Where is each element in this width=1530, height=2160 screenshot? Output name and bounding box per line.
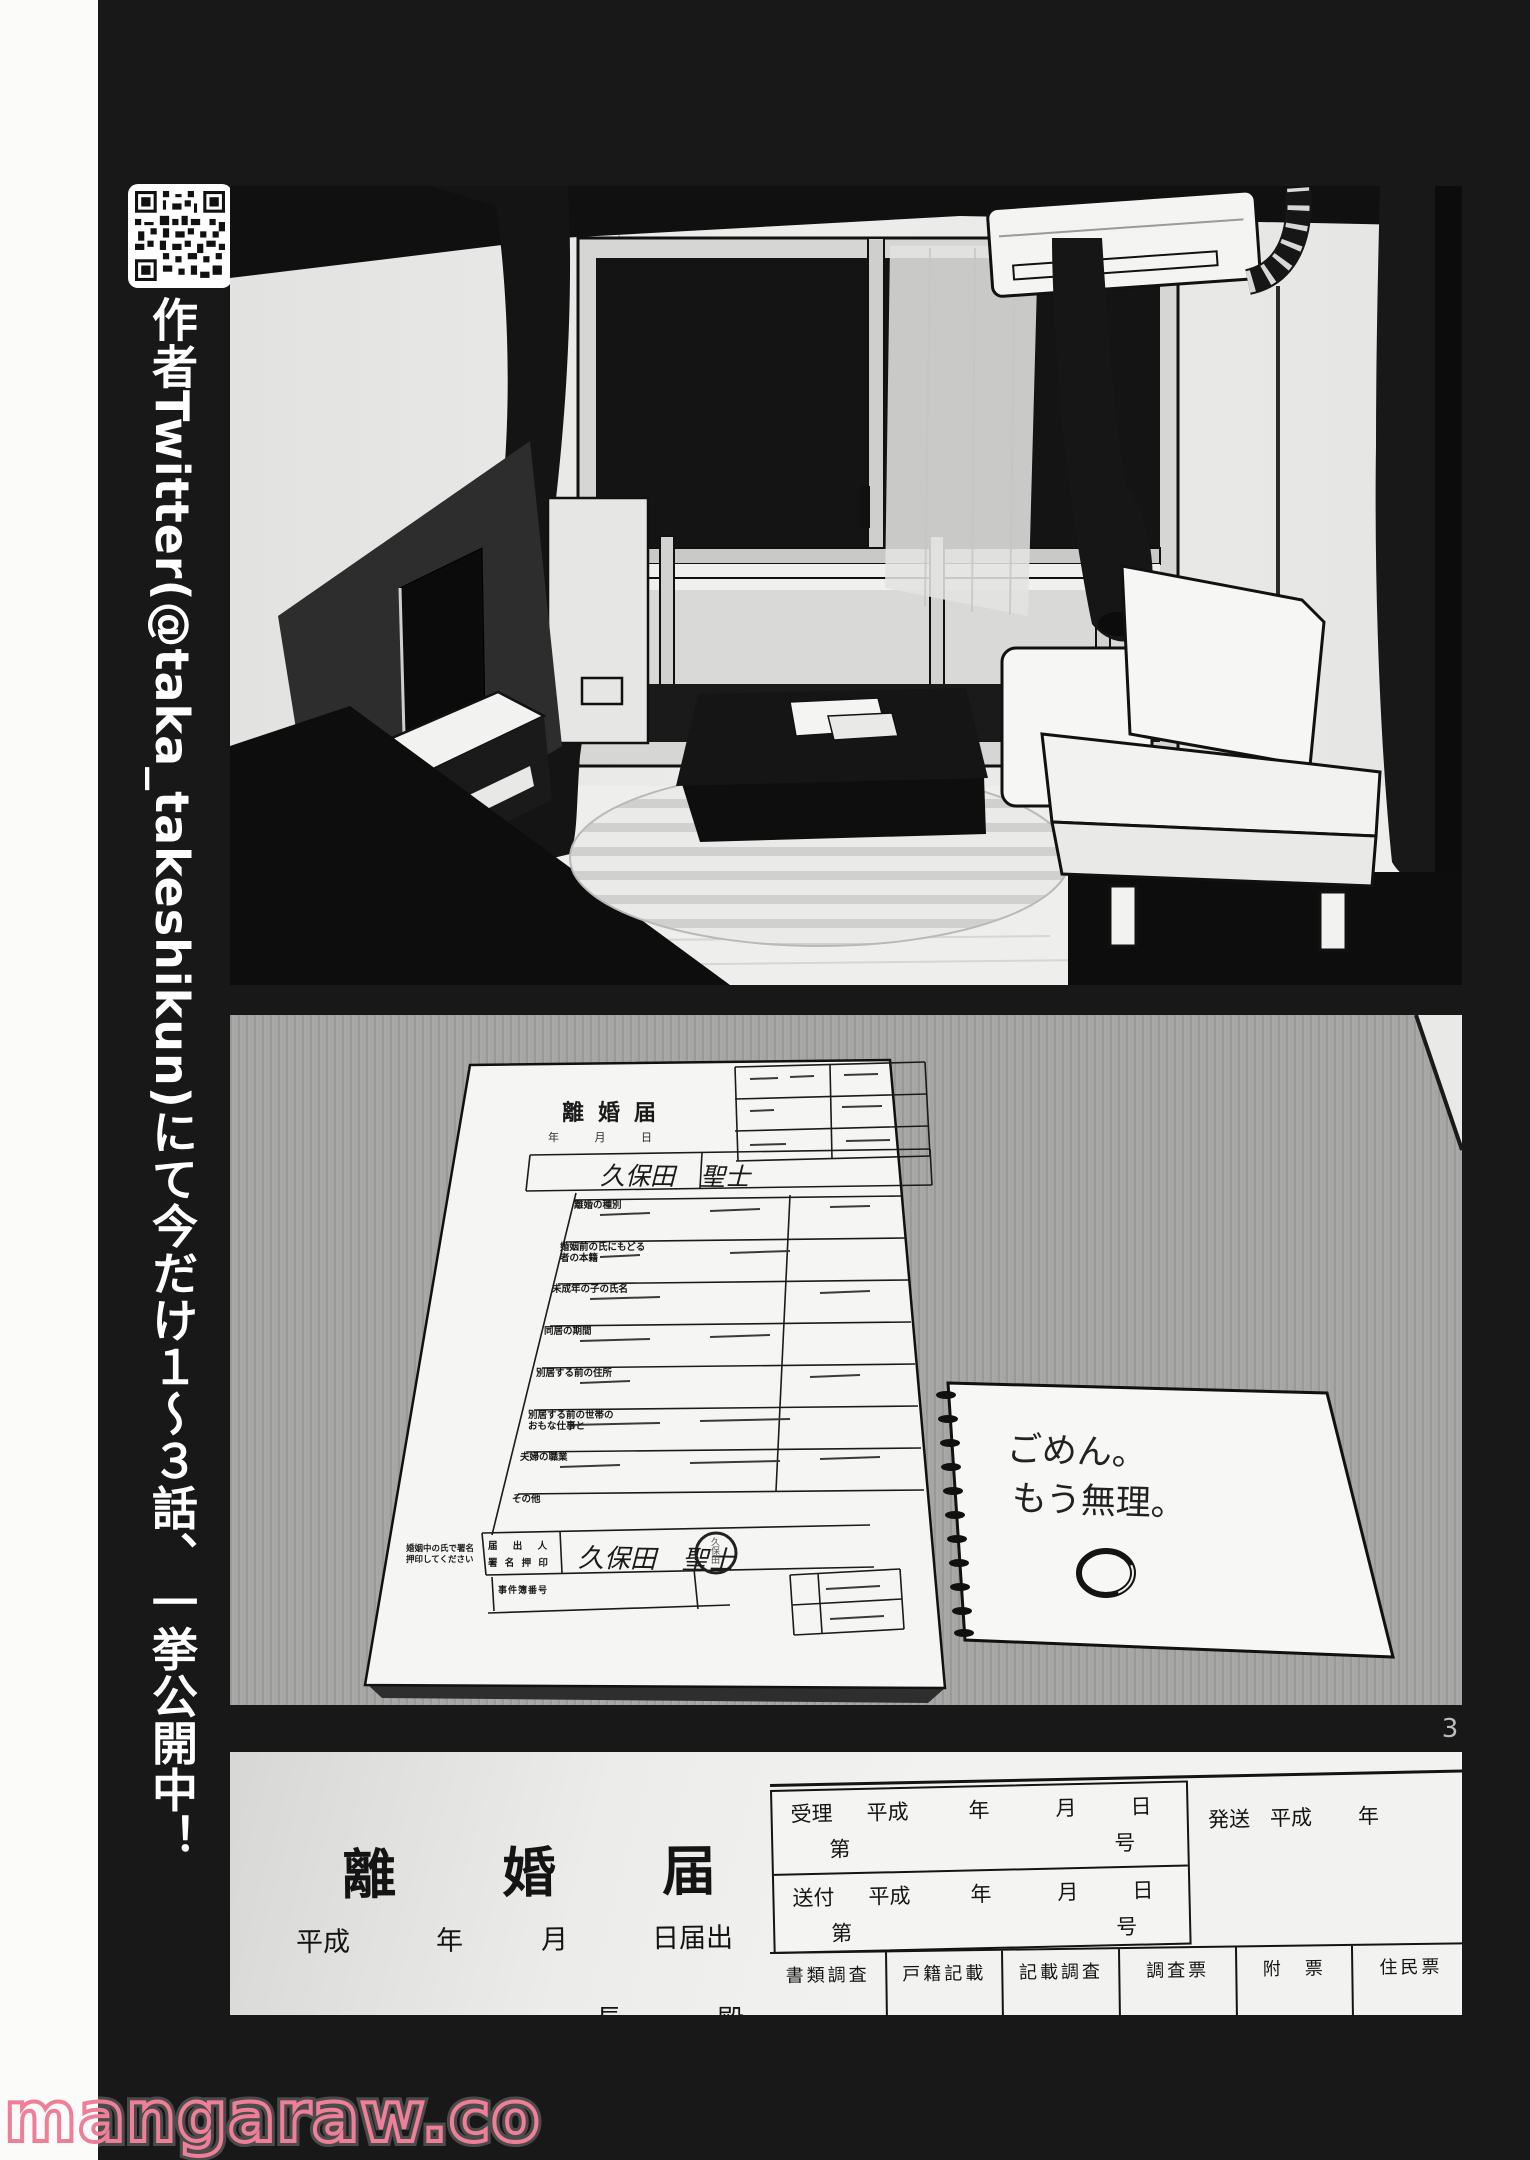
manga-page: 作者Twitter(@taka_takeshikun)にて今だけ１〜３話、一挙公… [0, 0, 1530, 2160]
paper-row-label: 夫婦の職業 [520, 1453, 612, 1464]
paper-row-label: 離婚の種別 [574, 1201, 694, 1212]
panel-living-room [230, 186, 1462, 985]
paper-name-handwriting: 久保田 聖士 [600, 1156, 750, 1193]
send-row-part: 平成 [868, 1880, 911, 1911]
send-number-part: 第 [831, 1917, 853, 1947]
panel-form-closeup: 離婚届 平成年月日届出 長 殿 受理平成年月日 第号 送付平成年月日 第号 発送… [230, 1752, 1462, 2015]
footer-cell: 附 票 [1237, 1946, 1355, 2015]
paper-header-date: 年 月 日 [548, 1129, 668, 1145]
accept-row-part: 年 [968, 1794, 990, 1824]
form-date-part: 日届出 [652, 1923, 733, 1955]
footer-cell: 記載調査 [1003, 1949, 1121, 2015]
paper-title: 離婚届 [562, 1095, 670, 1127]
footer-cell: 書類調査 [770, 1952, 888, 2015]
dispatch-part: 平成 [1270, 1806, 1313, 1831]
case-number-label: 事件簿番号 [498, 1583, 548, 1596]
room-dark-corner [1435, 186, 1462, 985]
note-handwriting-line2: もう無理。 [1011, 1470, 1187, 1527]
acceptance-box: 受理平成年月日 第号 送付平成年月日 第号 [770, 1781, 1192, 1954]
footer-cell: 戸籍記載 [887, 1951, 1005, 2015]
author-twitter-tagline: 作者Twitter(@taka_takeshikun)にて今だけ１〜３話、一挙公… [130, 296, 214, 2046]
send-number-part: 号 [1116, 1911, 1138, 1941]
dispatch-part: 発送 [1208, 1807, 1251, 1832]
footer-cell: 住民票 [1353, 1944, 1462, 2015]
form-date-row: 平成年月日届出 [296, 1916, 733, 1960]
form-date-part: 平成 [296, 1927, 350, 1959]
paper-row-label: その他 [512, 1495, 604, 1506]
stamp-text: 久保田 [708, 1537, 721, 1571]
paper-row-label: 婚姻前の氏にもどる者の本籍 [560, 1243, 652, 1265]
note-handwriting-line1: ごめん。 [1006, 1421, 1148, 1477]
paper-on-table [828, 713, 898, 740]
footer-cell: 調査票 [1120, 1947, 1238, 2015]
page-number: 3 [1430, 1714, 1470, 1744]
form-footer-cells: 書類調査戸籍記載記載調査調査票附 票住民票 [770, 1942, 1462, 2015]
accept-number-part: 第 [829, 1833, 851, 1863]
send-row-part: 送付 [792, 1882, 835, 1913]
form-date-part: 月 [541, 1924, 568, 1955]
sofa-leg [1320, 892, 1346, 950]
send-row-part: 月 [1057, 1876, 1079, 1906]
qr-pattern [135, 191, 225, 281]
living-room-scene [230, 186, 1462, 985]
form-title: 離婚届 [342, 1825, 823, 1909]
sign-field-label-2: 署 名 押 印 [488, 1555, 550, 1569]
qr-code-icon [128, 184, 232, 288]
divorce-paper [365, 1060, 945, 1688]
paper-row-label: 未成年の子の氏名 [552, 1285, 644, 1296]
site-watermark: mangaraw.co [4, 2076, 540, 2158]
paper-row-label: 同居の期間 [544, 1327, 636, 1338]
sofa-leg [1110, 886, 1136, 946]
window-handle [860, 486, 870, 528]
dispatch-row: 発送平成年 [1208, 1800, 1380, 1834]
air-conditioner [987, 190, 1260, 296]
sign-field-label-1: 届 出 人 [488, 1538, 553, 1552]
send-row-part: 日 [1132, 1874, 1154, 1904]
accept-number-part: 号 [1114, 1827, 1136, 1857]
floor-scene [230, 1015, 1462, 1705]
form-recipient: 長 殿 [595, 1998, 778, 2015]
paper-row-label: 別居する前の住所 [536, 1369, 628, 1380]
sign-instruction-2: 押印してください [406, 1553, 474, 1565]
dispatch-part: 年 [1358, 1804, 1380, 1828]
coffee-table [676, 688, 988, 842]
paper-row-label: 別居する前の世帯のおもな仕事と [528, 1411, 620, 1433]
accept-row-part: 日 [1130, 1790, 1152, 1820]
accept-row-part: 月 [1055, 1792, 1077, 1822]
form-date-part: 年 [436, 1926, 463, 1957]
send-row-part: 年 [970, 1878, 992, 1908]
accept-row-part: 受理 [790, 1798, 833, 1829]
closet-door [548, 498, 648, 743]
panel-divorce-paper-floor: 離婚届 年 月 日 久保田 聖士 離婚の種別婚姻前の氏にもどる者の本籍未成年の子… [230, 1015, 1462, 1705]
accept-row-part: 平成 [866, 1796, 909, 1827]
